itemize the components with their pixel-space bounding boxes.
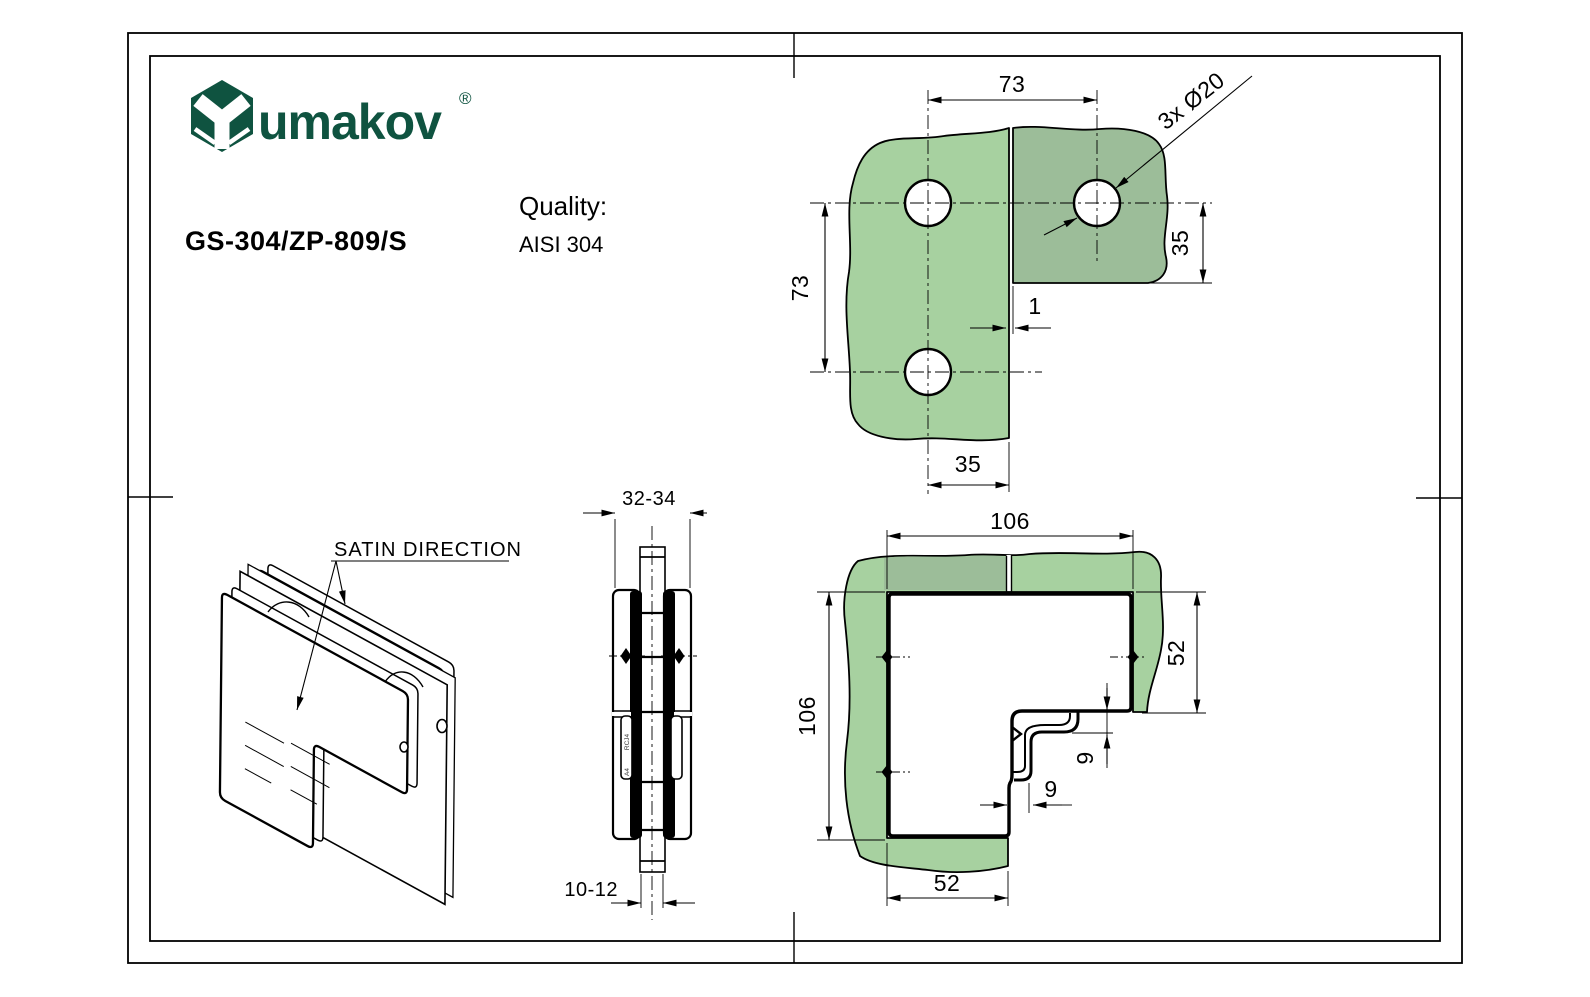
channel-right bbox=[671, 716, 682, 779]
front-view: 106 106 52 52 9 9 bbox=[794, 508, 1206, 906]
quality-value: AISI 304 bbox=[519, 232, 603, 257]
cast-mark-lower: A4 bbox=[624, 768, 631, 776]
glass-edge-strip bbox=[640, 547, 665, 872]
dim-text-step-h: 9 bbox=[1044, 776, 1057, 802]
drawing-sheet: umakov ® GS-304/ZP-809/S Quality: AISI 3… bbox=[0, 0, 1590, 997]
dim-text-bottom-35: 35 bbox=[955, 451, 982, 477]
dim-text-right-35: 35 bbox=[1167, 230, 1193, 257]
screw-head-lower bbox=[400, 742, 408, 752]
side-view: 32-34 RCJ4 A4 bbox=[564, 488, 707, 920]
jaw-band-left bbox=[630, 591, 642, 838]
step-profile-inner bbox=[1013, 713, 1070, 772]
umakov-logo-icon bbox=[191, 80, 253, 152]
iso-view: SATIN DIRECTION bbox=[220, 539, 522, 904]
title-block: umakov ® GS-304/ZP-809/S Quality: AISI 3… bbox=[185, 80, 607, 257]
dim-text-front-height: 106 bbox=[794, 696, 820, 736]
satin-direction-label: SATIN DIRECTION bbox=[334, 539, 522, 561]
quality-label: Quality: bbox=[519, 191, 607, 221]
dim-text-left-73: 73 bbox=[787, 275, 813, 302]
top-view: 73 73 35 35 1 3x Ø20 bbox=[787, 67, 1252, 494]
glass-gap-slit bbox=[1007, 555, 1012, 591]
dim-text-top-73: 73 bbox=[999, 71, 1026, 97]
front-view-glass-dark-pane bbox=[884, 556, 1006, 590]
holes-count-label: 3x Ø20 bbox=[1153, 67, 1230, 135]
drawing-canvas: umakov ® GS-304/ZP-809/S Quality: AISI 3… bbox=[0, 0, 1590, 997]
satin-leader-top-edge bbox=[336, 561, 345, 604]
dim-text-width: 32-34 bbox=[622, 488, 676, 510]
dim-text-bottom-arm: 52 bbox=[934, 870, 961, 896]
logo-wordmark: umakov bbox=[258, 94, 442, 150]
dim-text-right-arm: 52 bbox=[1163, 640, 1189, 667]
jaw-band-right bbox=[663, 591, 675, 838]
registered-mark: ® bbox=[459, 89, 472, 108]
cast-mark-upper: RCJ4 bbox=[624, 733, 631, 750]
dim-text-step-v: 9 bbox=[1072, 751, 1098, 764]
dim-text-glass-thickness: 10-12 bbox=[564, 879, 618, 901]
dim-text-gap-1: 1 bbox=[1028, 293, 1041, 319]
product-code: GS-304/ZP-809/S bbox=[185, 226, 407, 256]
dim-text-front-width: 106 bbox=[990, 508, 1030, 534]
clamp-body-outline bbox=[889, 594, 1131, 836]
screw-head-upper bbox=[437, 720, 447, 733]
